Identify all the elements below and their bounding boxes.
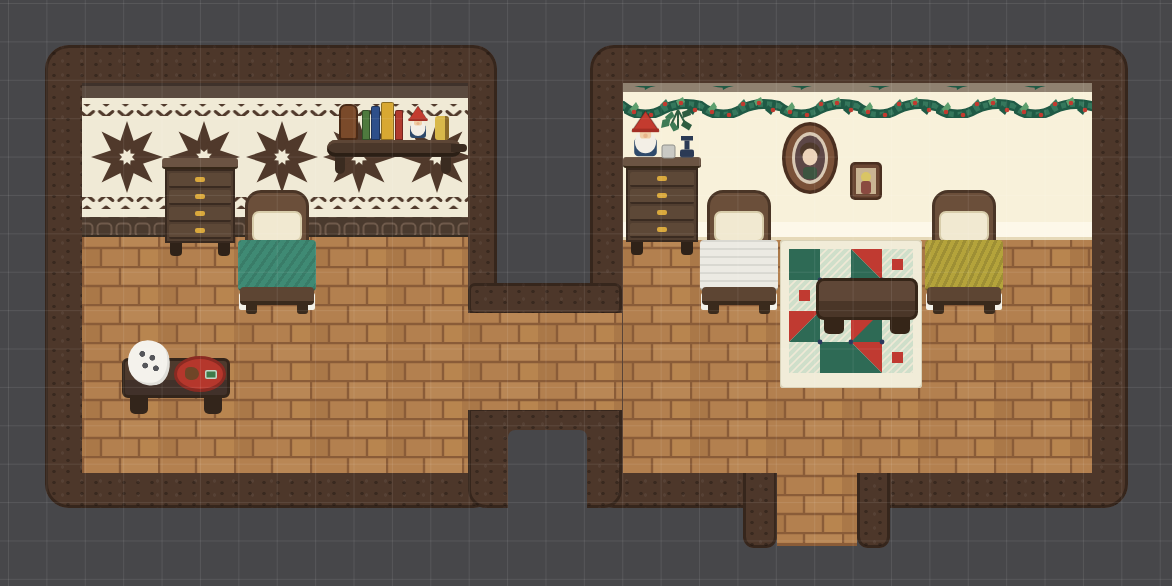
portrait-small[interactable] — [850, 162, 882, 200]
bed-teal[interactable] — [238, 190, 316, 315]
bed-white[interactable] — [700, 190, 778, 315]
dresser-leg — [218, 243, 230, 256]
drawer-handle — [195, 177, 205, 182]
south-exit-wall-left — [743, 470, 777, 548]
shelf-bracket — [441, 157, 451, 174]
dresser-right[interactable] — [623, 157, 701, 255]
book-yellow — [381, 102, 394, 140]
rug-table[interactable] — [816, 276, 918, 334]
bed-pillow — [252, 211, 302, 242]
drawer — [169, 207, 231, 222]
south-exit-wall-right — [857, 470, 890, 548]
book-blue — [371, 106, 380, 140]
table-leg — [824, 320, 844, 334]
drawer — [630, 223, 694, 238]
dresser-top — [162, 158, 238, 169]
bed-leg — [759, 303, 770, 314]
dresser-leg — [681, 242, 693, 255]
bed-blanket — [925, 240, 1003, 291]
book-green — [362, 110, 370, 140]
candle-icon — [435, 116, 449, 140]
drawer — [169, 173, 231, 188]
book-red — [395, 110, 403, 140]
drawer — [169, 190, 231, 205]
drawer — [169, 224, 231, 239]
portrait-large[interactable] — [782, 122, 838, 194]
drawer — [630, 206, 694, 221]
bed-leg — [984, 303, 995, 314]
game-scene — [0, 0, 1172, 586]
bed-leg — [246, 303, 257, 314]
drawer — [630, 189, 694, 204]
drawer-handle — [657, 193, 667, 198]
table-leg — [130, 398, 148, 414]
bed-pillow — [939, 211, 989, 242]
shelf-board — [327, 140, 461, 157]
bed-yellow[interactable] — [925, 190, 1003, 315]
drawer-handle — [657, 176, 667, 181]
shelf-bracket — [335, 157, 345, 174]
bed-leg — [933, 303, 944, 314]
wall-notch — [508, 430, 587, 508]
dresser-drawers — [626, 168, 698, 242]
dresser-left[interactable] — [162, 158, 238, 256]
gnome-figurine-icon — [405, 106, 431, 140]
corridor-top-wall — [468, 283, 622, 315]
drawer-handle — [195, 211, 205, 216]
bed-blanket — [238, 240, 316, 291]
corridor-bottom-wall — [468, 408, 622, 508]
dresser-leg — [631, 242, 643, 255]
drawer-handle — [195, 228, 205, 233]
bed-pillow — [714, 211, 764, 242]
bed-blanket — [700, 240, 778, 291]
dresser-leg — [170, 243, 182, 256]
dresser-drawers — [165, 169, 235, 243]
coffee-table[interactable] — [120, 340, 232, 414]
drawer-handle — [657, 227, 667, 232]
hanging-sprig[interactable] — [656, 108, 700, 162]
exit-floor-edge — [777, 543, 857, 546]
drawer-handle — [195, 194, 205, 199]
table-leg — [204, 398, 222, 414]
bed-leg — [708, 303, 719, 314]
table-leg — [890, 320, 910, 334]
bottle-icon — [339, 104, 358, 140]
drawer — [630, 172, 694, 187]
shelf-arm — [451, 144, 467, 152]
wall-portraits[interactable] — [778, 118, 888, 204]
wall-shelf[interactable] — [327, 100, 467, 178]
table-top — [816, 278, 918, 320]
drawer-handle — [657, 210, 667, 215]
cookie-plate — [174, 356, 226, 392]
bed-leg — [297, 303, 308, 314]
